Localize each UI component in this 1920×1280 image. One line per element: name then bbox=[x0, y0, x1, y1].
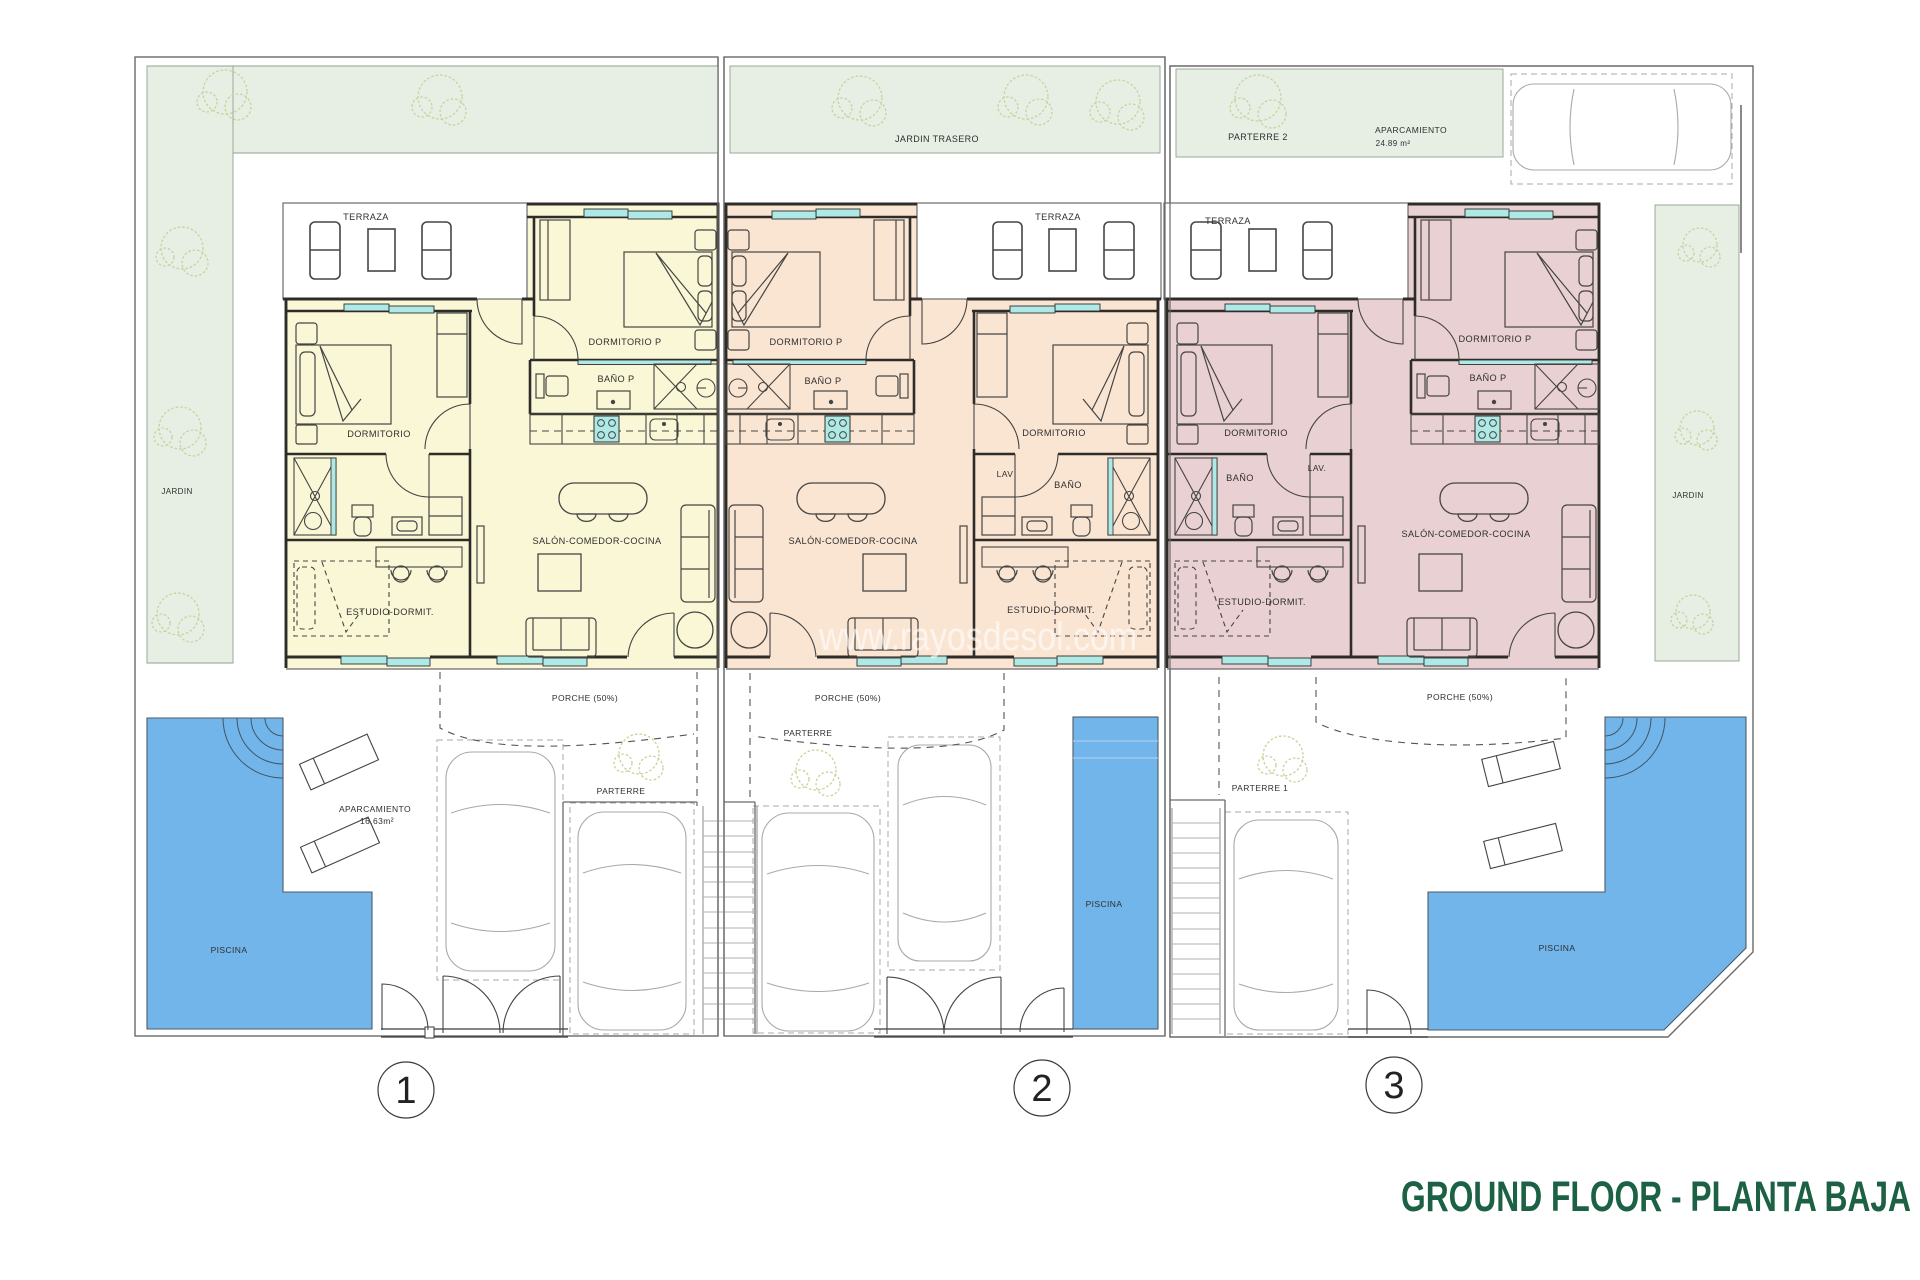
svg-text:www.rayosdesol.com: www.rayosdesol.com bbox=[818, 615, 1137, 659]
svg-text:PISCINA: PISCINA bbox=[1539, 943, 1576, 953]
svg-text:ESTUDIO-DORMIT.: ESTUDIO-DORMIT. bbox=[346, 607, 434, 617]
svg-text:PARTERRE: PARTERRE bbox=[784, 728, 833, 738]
svg-text:DORMITORIO: DORMITORIO bbox=[347, 429, 411, 439]
svg-text:JARDIN: JARDIN bbox=[1672, 491, 1703, 500]
svg-text:BAÑO: BAÑO bbox=[1226, 473, 1254, 483]
svg-text:APARCAMIENTO: APARCAMIENTO bbox=[1375, 125, 1447, 135]
svg-text:TERRAZA: TERRAZA bbox=[1205, 216, 1251, 226]
svg-text:PORCHE (50%): PORCHE (50%) bbox=[815, 693, 881, 703]
svg-text:2: 2 bbox=[1031, 1068, 1052, 1110]
svg-text:PARTERRE 2: PARTERRE 2 bbox=[1228, 132, 1288, 142]
svg-text:PORCHE (50%): PORCHE (50%) bbox=[552, 693, 618, 703]
svg-text:PISCINA: PISCINA bbox=[1086, 899, 1123, 909]
svg-text:LAV.: LAV. bbox=[1308, 463, 1327, 473]
svg-text:PARTERRE: PARTERRE bbox=[597, 786, 646, 796]
svg-text:3: 3 bbox=[1383, 1065, 1404, 1107]
svg-text:PARTERRE 1: PARTERRE 1 bbox=[1232, 783, 1289, 793]
svg-text:JARDIN TRASERO: JARDIN TRASERO bbox=[895, 134, 979, 144]
svg-text:SALÓN-COMEDOR-COCINA: SALÓN-COMEDOR-COCINA bbox=[1402, 529, 1531, 539]
svg-text:BAÑO P: BAÑO P bbox=[804, 376, 841, 386]
svg-text:PORCHE (50%): PORCHE (50%) bbox=[1427, 692, 1493, 702]
svg-text:BAÑO P: BAÑO P bbox=[597, 374, 634, 384]
svg-text:PISCINA: PISCINA bbox=[211, 945, 248, 955]
svg-text:SALÓN-COMEDOR-COCINA: SALÓN-COMEDOR-COCINA bbox=[533, 536, 662, 546]
svg-text:DORMITORIO P: DORMITORIO P bbox=[588, 337, 661, 347]
svg-text:SALÓN-COMEDOR-COCINA: SALÓN-COMEDOR-COCINA bbox=[789, 536, 918, 546]
svg-text:GROUND FLOOR - PLANTA BAJA: GROUND FLOOR - PLANTA BAJA bbox=[1401, 1173, 1911, 1221]
svg-text:DORMITORIO P: DORMITORIO P bbox=[1458, 334, 1531, 344]
svg-text:TERRAZA: TERRAZA bbox=[1035, 212, 1081, 222]
svg-text:16.63m²: 16.63m² bbox=[360, 816, 394, 826]
svg-text:24.89 m²: 24.89 m² bbox=[1376, 139, 1411, 148]
svg-text:JARDIN: JARDIN bbox=[161, 487, 192, 496]
svg-text:DORMITORIO: DORMITORIO bbox=[1224, 428, 1288, 438]
svg-text:TERRAZA: TERRAZA bbox=[343, 212, 389, 222]
svg-text:DORMITORIO: DORMITORIO bbox=[1022, 428, 1086, 438]
svg-text:BAÑO: BAÑO bbox=[1054, 480, 1082, 490]
svg-text:BAÑO P: BAÑO P bbox=[1469, 373, 1506, 383]
svg-text:APARCAMIENTO: APARCAMIENTO bbox=[339, 804, 411, 814]
svg-text:LAV: LAV bbox=[997, 469, 1014, 479]
svg-text:DORMITORIO P: DORMITORIO P bbox=[769, 337, 842, 347]
svg-text:ESTUDIO-DORMIT.: ESTUDIO-DORMIT. bbox=[1007, 605, 1095, 615]
svg-text:1: 1 bbox=[395, 1070, 416, 1112]
svg-text:ESTUDIO-DORMIT.: ESTUDIO-DORMIT. bbox=[1218, 597, 1306, 607]
